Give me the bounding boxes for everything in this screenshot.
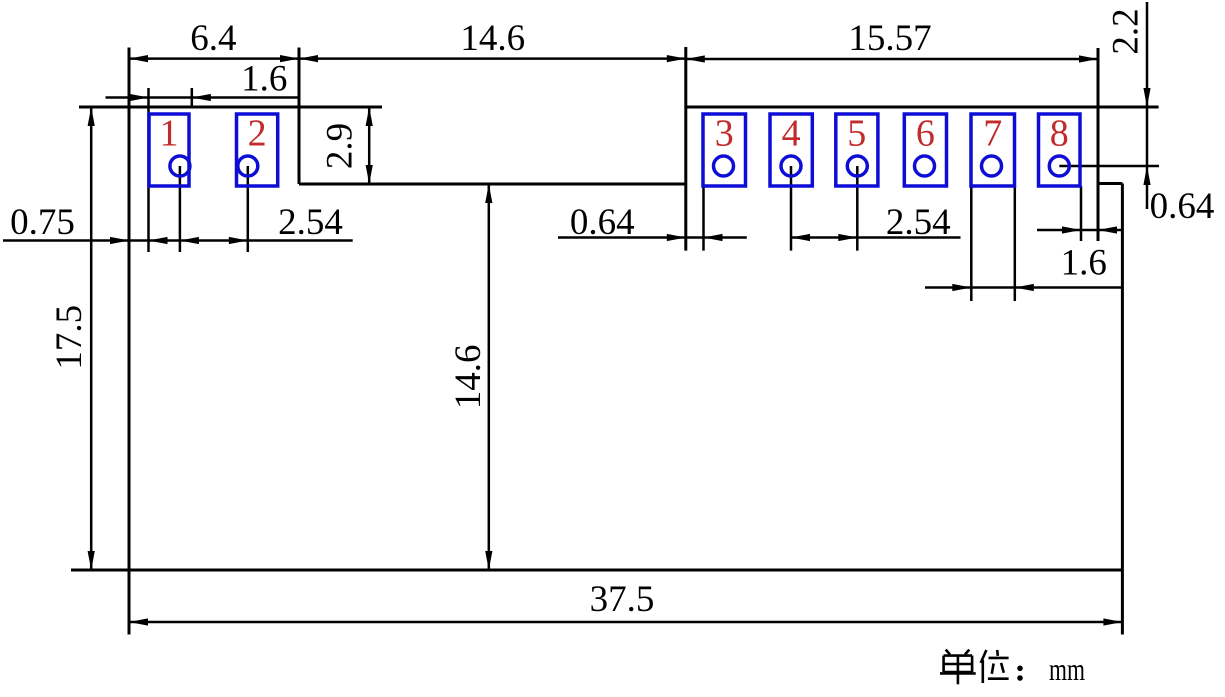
svg-text:2.2: 2.2 (1106, 8, 1147, 54)
svg-text:14.6: 14.6 (460, 18, 525, 59)
svg-text:37.5: 37.5 (590, 579, 655, 620)
svg-text:1.6: 1.6 (241, 59, 287, 100)
svg-text:3: 3 (715, 113, 734, 155)
svg-text:7: 7 (983, 113, 1002, 155)
svg-text:5: 5 (847, 113, 866, 155)
svg-text:1.6: 1.6 (1061, 243, 1107, 284)
svg-text:2.54: 2.54 (886, 202, 951, 243)
svg-text:0.75: 0.75 (10, 202, 75, 243)
svg-text:6.4: 6.4 (190, 18, 236, 59)
svg-text:2: 2 (248, 113, 267, 155)
svg-text:6: 6 (916, 113, 935, 155)
svg-text:2.9: 2.9 (320, 123, 361, 169)
svg-text:0.64: 0.64 (1150, 186, 1215, 227)
svg-text:8: 8 (1050, 113, 1069, 155)
svg-text:mm: mm (1049, 651, 1085, 687)
svg-text:14.6: 14.6 (448, 345, 489, 410)
svg-text:0.64: 0.64 (570, 202, 635, 243)
svg-text:2.54: 2.54 (278, 202, 343, 243)
svg-text:4: 4 (782, 113, 801, 155)
svg-text:17.5: 17.5 (49, 305, 90, 370)
svg-text:1: 1 (160, 113, 179, 155)
svg-text:15.57: 15.57 (848, 18, 931, 59)
